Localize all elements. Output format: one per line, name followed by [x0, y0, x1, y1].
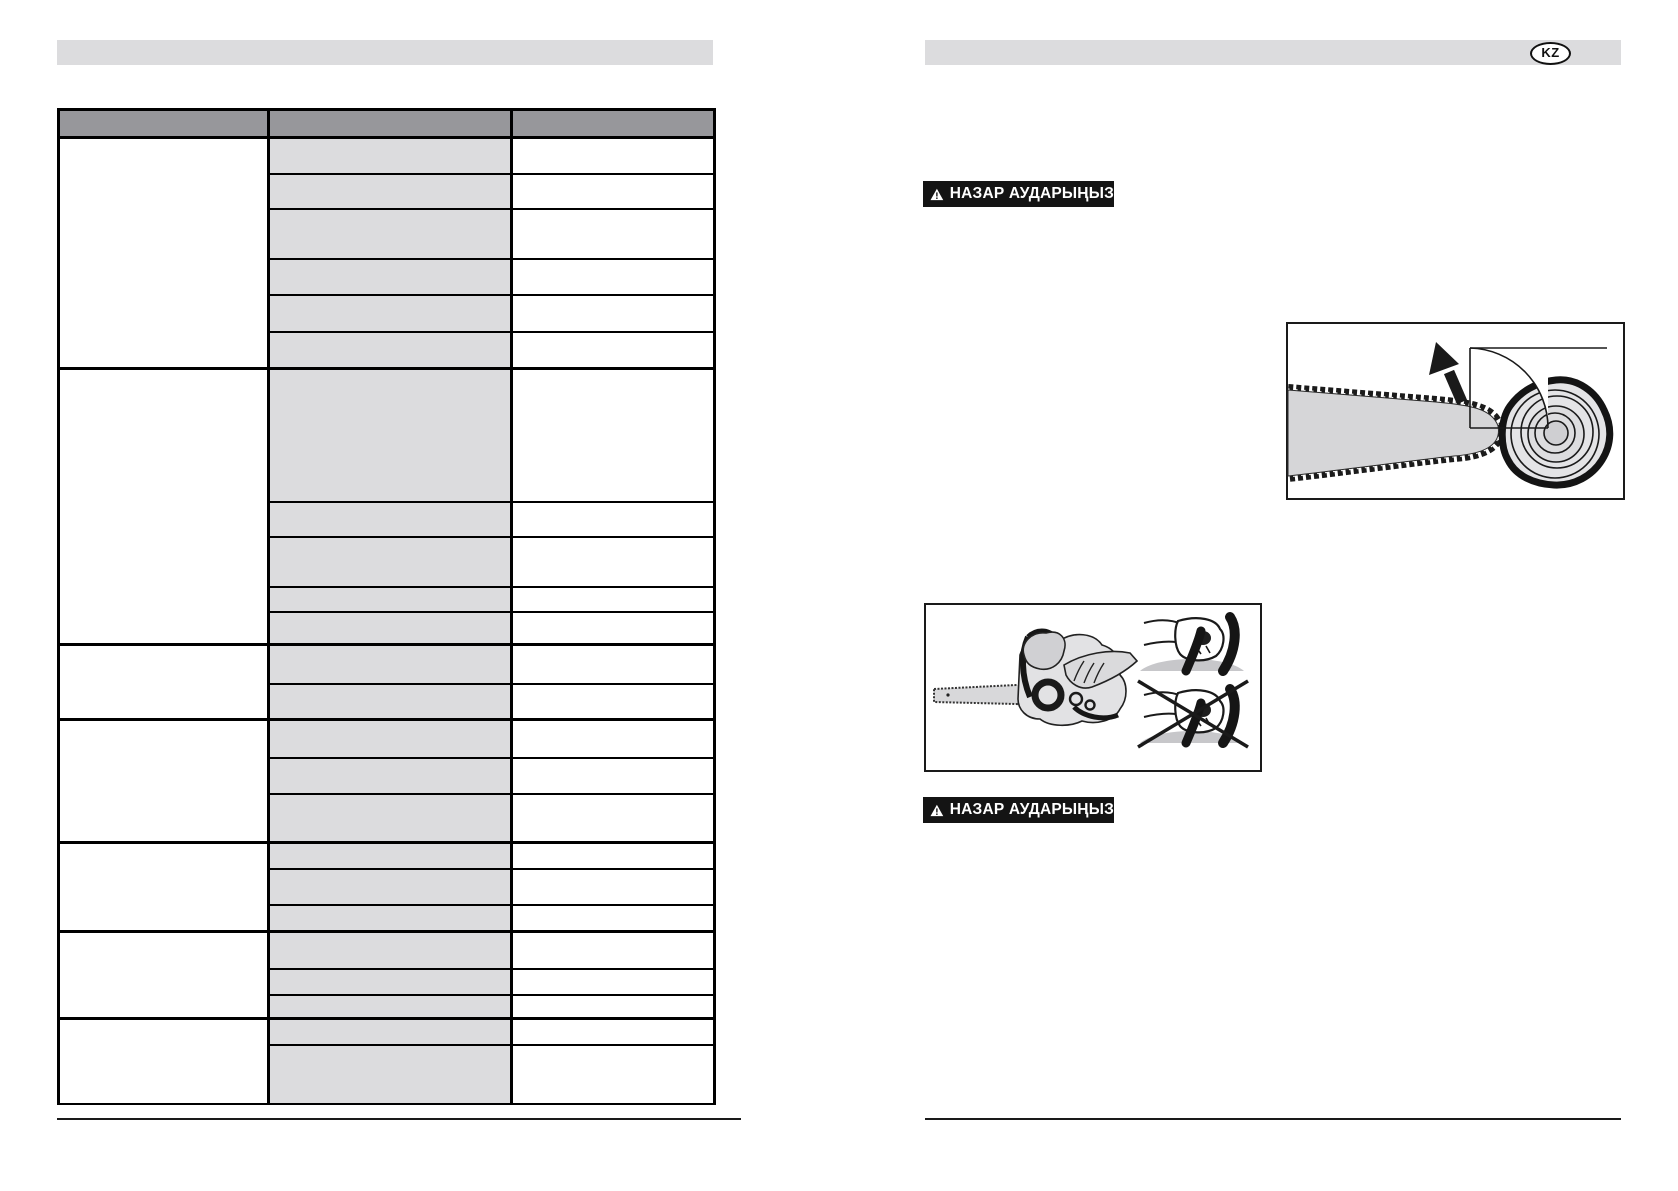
language-badge: KZ: [1530, 42, 1571, 65]
table-col1-group-cell: [59, 720, 269, 843]
table-col1-group-cell: [59, 138, 269, 369]
table-col3-cell: [512, 1045, 715, 1104]
table-col2-cell: [269, 758, 512, 794]
table-header-cell: [512, 110, 715, 138]
grip-incorrect-diagram: [1138, 681, 1248, 747]
table-col2-cell: [269, 295, 512, 332]
table-col2-cell: [269, 1019, 512, 1045]
table-col3-cell: [512, 869, 715, 905]
table-header-cell: [269, 110, 512, 138]
table-col3-cell: [512, 259, 715, 295]
table-col2-cell: [269, 174, 512, 209]
left-page-footer-rule: [57, 1118, 741, 1120]
table-row: [59, 932, 715, 969]
table-col2-cell: [269, 209, 512, 259]
table-col2-cell: [269, 1045, 512, 1104]
table-col2-cell: [269, 537, 512, 587]
table-col3-cell: [512, 995, 715, 1019]
chainsaw-grip-illustration: [924, 603, 1262, 772]
table-col2-cell: [269, 369, 512, 502]
table-col3-cell: [512, 905, 715, 932]
table-col2-cell: [269, 969, 512, 995]
table-col3-cell: [512, 295, 715, 332]
chainsaw-kickback-log-illustration: [1286, 322, 1625, 500]
table-col3-cell: [512, 758, 715, 794]
warning-banner-1: НАЗАР АУДАРЫҢЫЗ: [923, 181, 1114, 207]
log-cross-section: [1502, 380, 1610, 485]
troubleshooting-table: [57, 108, 716, 1105]
table-col2-cell: [269, 932, 512, 969]
table-col1-group-cell: [59, 1019, 269, 1104]
table-row: [59, 369, 715, 502]
table-col2-cell: [269, 794, 512, 843]
warning-triangle-icon: [930, 186, 944, 203]
manual-spread-page: KZ НАЗАР АУДАРЫҢЫЗ: [0, 0, 1678, 1191]
warning-banner-2: НАЗАР АУДАРЫҢЫЗ: [923, 797, 1114, 823]
table-row: [59, 138, 715, 174]
table-col2-cell: [269, 720, 512, 758]
table-col3-cell: [512, 138, 715, 174]
table-col2-cell: [269, 905, 512, 932]
table-col3-cell: [512, 537, 715, 587]
warning-triangle-icon: [930, 802, 944, 819]
warning-banner-label: НАЗАР АУДАРЫҢЫЗ: [950, 801, 1114, 819]
table-col1-group-cell: [59, 369, 269, 645]
table-col3-cell: [512, 209, 715, 259]
table-col3-cell: [512, 645, 715, 684]
table-row: [59, 843, 715, 869]
table-col1-group-cell: [59, 645, 269, 720]
table-col3-cell: [512, 1019, 715, 1045]
table-col3-cell: [512, 969, 715, 995]
table-col2-cell: [269, 869, 512, 905]
warning-banner-label: НАЗАР АУДАРЫҢЫЗ: [950, 185, 1114, 203]
table-col2-cell: [269, 259, 512, 295]
table-col1-group-cell: [59, 932, 269, 1019]
table-row: [59, 645, 715, 684]
table-col3-cell: [512, 843, 715, 869]
table-col3-cell: [512, 174, 715, 209]
table-col2-cell: [269, 995, 512, 1019]
table-col3-cell: [512, 612, 715, 645]
table-col3-cell: [512, 932, 715, 969]
table-col3-cell: [512, 369, 715, 502]
table-col3-cell: [512, 332, 715, 369]
table-row: [59, 720, 715, 758]
left-page-title-bar: [57, 40, 713, 65]
table-col2-cell: [269, 843, 512, 869]
table-col2-cell: [269, 502, 512, 537]
table-col3-cell: [512, 720, 715, 758]
table-col2-cell: [269, 612, 512, 645]
table-col2-cell: [269, 138, 512, 174]
table-col3-cell: [512, 587, 715, 612]
table-col2-cell: [269, 332, 512, 369]
table-col3-cell: [512, 794, 715, 843]
table-col2-cell: [269, 684, 512, 720]
table-header-cell: [59, 110, 269, 138]
table-col1-group-cell: [59, 843, 269, 932]
table-row: [59, 1019, 715, 1045]
right-page-footer-rule: [925, 1118, 1621, 1120]
table-col2-cell: [269, 645, 512, 684]
table-col3-cell: [512, 684, 715, 720]
table-col3-cell: [512, 502, 715, 537]
table-col2-cell: [269, 587, 512, 612]
right-page-title-bar: KZ: [925, 40, 1621, 65]
